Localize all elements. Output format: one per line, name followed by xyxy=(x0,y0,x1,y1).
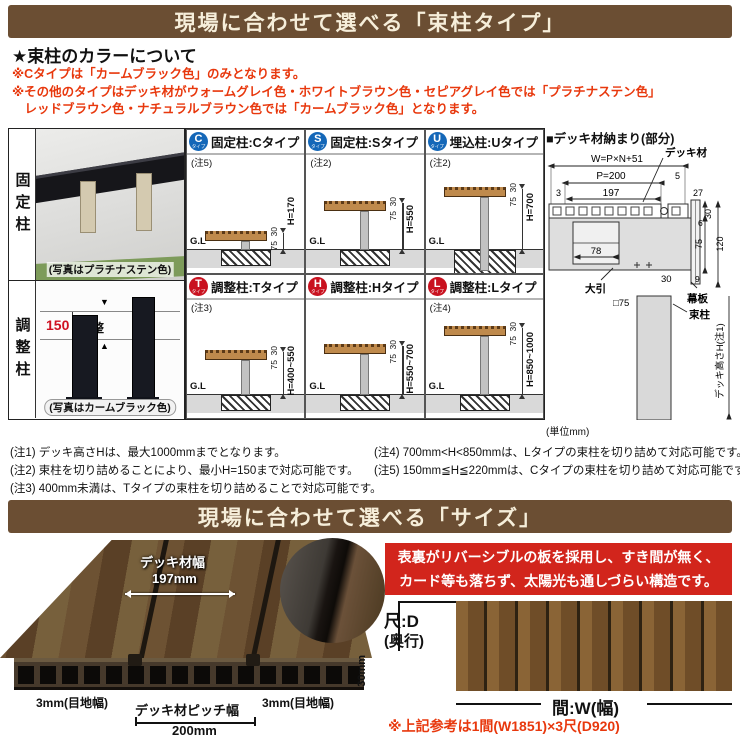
thickness-label: 30mm xyxy=(356,655,368,687)
post-photo-panel: 固定柱 (写真はプラチナステン色) 調整柱 ▼ ▲ 150 調整 xyxy=(8,128,185,420)
post-shape xyxy=(480,336,489,395)
deck-cross-section xyxy=(14,658,364,690)
height-dim-line xyxy=(522,328,523,394)
unit-label: (単位mm) xyxy=(546,423,589,438)
ground-level-label: G.L xyxy=(190,381,206,392)
joint-connector xyxy=(246,654,260,666)
dim-30: 30 xyxy=(389,340,398,349)
height-label: H=850~1000 xyxy=(525,332,536,387)
ground-level-label: G.L xyxy=(309,381,325,392)
ground-level-label: G.L xyxy=(190,236,206,247)
arrow-up-icon: ▲ xyxy=(100,341,109,351)
reference-note: ※上記参考は1間(W1851)×3尺(D920) xyxy=(388,716,620,736)
fixed-post-row: 固定柱 (写真はプラチナステン色) xyxy=(9,129,184,281)
foundation-hatch xyxy=(221,250,271,266)
fixed-post-photo: (写真はプラチナステン色) xyxy=(36,129,184,280)
dim-30: 30 xyxy=(509,183,518,192)
deck-width-value: 197mm xyxy=(152,571,197,586)
type-c-badge-icon: Cタイプ xyxy=(189,132,208,151)
cell-header: Tタイプ 調整柱:Tタイプ xyxy=(187,275,304,300)
color-note-2: ※その他のタイプはデッキ材がウォームグレイ色・ホワイトブラウン色・セピアグレイ色… xyxy=(12,84,661,101)
post-shape xyxy=(360,211,369,250)
type-cell-t: Tタイプ 調整柱:Tタイプ (注3) G.L 30 75 H=400~550 xyxy=(186,274,305,419)
label-post-size: □75 xyxy=(613,298,629,309)
label-makuita: 幕板 xyxy=(686,292,708,305)
detail-diagram-title: ■デッキ材納まり(部分) xyxy=(546,128,674,147)
type-cell-h: Hタイプ 調整柱:Hタイプ G.L 30 75 H=550~700 xyxy=(305,274,424,419)
cell-header: Uタイプ 埋込柱:Uタイプ xyxy=(426,130,543,155)
ground-level-label: G.L xyxy=(429,381,445,392)
adjust-post-caption: (写真はカームブラック色) xyxy=(44,399,176,416)
post-shape xyxy=(480,197,489,271)
dim-75: 75 xyxy=(270,360,279,369)
color-section-heading: ★束柱のカラーについて xyxy=(12,42,197,67)
footnote-3: (注3) 400mm未満は、Tタイプの束柱を切り詰めることで対応可能です。 xyxy=(10,480,382,496)
catalog-page: 現場に合わせて選べる「束柱タイプ」 ★束柱のカラーについて ※Cタイプは「カーム… xyxy=(0,0,740,740)
foundation-hatch xyxy=(340,395,390,411)
dim-27: 27 xyxy=(693,188,703,198)
post-shape xyxy=(241,241,250,250)
feature-line-2: カード等も落ちず、太陽光も通しづらい構造です。 xyxy=(399,569,718,593)
dim-75: 75 xyxy=(389,354,398,363)
type-cell-u: Uタイプ 埋込柱:Uタイプ (注2) G.L 30 75 H=700 xyxy=(425,129,544,274)
height-dim-line xyxy=(283,233,284,249)
height-dim-line xyxy=(283,352,284,394)
type-title: 調整柱:Lタイプ xyxy=(450,277,537,296)
dim-120: 120 xyxy=(715,236,725,251)
height-label: H=170 xyxy=(286,197,297,225)
dim-30: 30 xyxy=(509,322,518,331)
type-title: 固定柱:Cタイプ xyxy=(211,132,299,151)
adjust-post-photo: ▼ ▲ 150 調整 (写真はカームブラック色) xyxy=(36,281,184,418)
cell-header: Hタイプ 調整柱:Hタイプ xyxy=(306,275,423,300)
type-diagram: (注2) G.L 30 75 H=550 xyxy=(306,153,423,273)
post-image xyxy=(136,173,152,231)
dim-30: 30 xyxy=(270,227,279,236)
header2-bar: 現場に合わせて選べる「サイズ」 xyxy=(8,500,732,533)
type-title: 固定柱:Sタイプ xyxy=(330,132,418,151)
dim-30: 30 xyxy=(389,197,398,206)
type-h-badge-icon: Hタイプ xyxy=(308,277,327,296)
joint-width-left: 3mm(目地幅) xyxy=(36,694,108,711)
feature-line-1: 表裏がリバーシブルの板を採用し、すき間が無く、 xyxy=(398,545,720,569)
deck-board-shape xyxy=(324,201,386,211)
height-label: H=700 xyxy=(525,193,536,221)
height-dim-line xyxy=(522,189,523,249)
type-title: 調整柱:Hタイプ xyxy=(330,277,418,296)
label-ooibiki: 大引 xyxy=(585,282,606,295)
fixed-post-caption: (写真はプラチナステン色) xyxy=(47,262,174,277)
post-image xyxy=(80,181,96,233)
dim-30-top: 30 xyxy=(703,209,713,219)
dim-w-formula: W=P×N+51 xyxy=(591,154,643,165)
label-deck-height: デッキ高さH(注1) xyxy=(714,323,726,398)
type-s-badge-icon: Sタイプ xyxy=(308,132,327,151)
height-dim-line xyxy=(402,203,403,249)
deck-board-shape xyxy=(205,350,267,360)
height-label: H=550~700 xyxy=(405,344,416,394)
height-label: H=400~550 xyxy=(286,346,297,396)
dim-75: 75 xyxy=(509,336,518,345)
type-u-badge-icon: Uタイプ xyxy=(428,132,447,151)
cell-note: (注2) xyxy=(430,155,451,169)
height-label: H=550 xyxy=(405,205,416,233)
cell-header: Sタイプ 固定柱:Sタイプ xyxy=(306,130,423,155)
dim-75: 75 xyxy=(389,211,398,220)
deck-board-shape xyxy=(444,187,506,197)
pitch-value: 200mm xyxy=(172,723,217,738)
label-tsukabashira: 束柱 xyxy=(689,308,710,321)
type-diagram: (注2) G.L 30 75 H=700 xyxy=(426,153,543,273)
guide-line xyxy=(40,339,180,340)
deck-board-shape xyxy=(444,326,506,336)
arrow-down-icon: ▼ xyxy=(100,297,109,307)
width-dim-line-left xyxy=(456,703,541,705)
cell-note: (注2) xyxy=(310,155,331,169)
joint-detail-inset-photo xyxy=(280,538,385,643)
dim-p200: P=200 xyxy=(596,171,626,182)
foundation-hatch xyxy=(340,250,390,266)
type-cell-l: Lタイプ 調整柱:Lタイプ (注4) G.L 30 75 H=850~1000 xyxy=(425,274,544,419)
pitch-label: デッキ材ピッチ幅 xyxy=(135,700,239,719)
header1-title: 現場に合わせて選べる「束柱タイプ」 xyxy=(175,7,566,37)
type-l-badge-icon: Lタイプ xyxy=(428,277,447,296)
adjust-dimension: 150 xyxy=(46,317,69,333)
header2-title: 現場に合わせて選べる「サイズ」 xyxy=(198,502,542,532)
black-post-image xyxy=(132,297,155,399)
dim-3: 3 xyxy=(556,188,561,198)
width-dim-line-right xyxy=(647,703,732,705)
joint-connector xyxy=(128,654,142,666)
type-diagram: (注4) G.L 30 75 H=850~1000 xyxy=(426,298,543,418)
deck-board-shape xyxy=(324,344,386,354)
foundation-hatch xyxy=(221,395,271,411)
dim-75: 75 xyxy=(509,197,518,206)
adjust-post-row: 調整柱 ▼ ▲ 150 調整 (写真はカームブラック色) xyxy=(9,281,184,418)
dim-75: 75 xyxy=(694,239,704,249)
cell-header: Cタイプ 固定柱:Cタイプ xyxy=(187,130,304,155)
deck-plan-view-image xyxy=(456,601,732,691)
type-cell-c: Cタイプ 固定柱:Cタイプ (注5) G.L 30 75 H=170 xyxy=(186,129,305,274)
footnote-1: (注1) デッキ高さHは、最大1000mmまでとなります。 xyxy=(10,444,286,460)
color-note-3: レッドブラウン色・ナチュラルブラウン色では「カームブラック色」となります。 xyxy=(12,101,484,118)
dim-30-bottom: 30 xyxy=(661,274,672,285)
dim-30: 30 xyxy=(270,346,279,355)
post-shape xyxy=(360,354,369,395)
type-title: 調整柱:Tタイプ xyxy=(211,277,298,296)
deck-board-shape xyxy=(205,231,267,241)
dim-6: 6 xyxy=(698,218,703,228)
color-note-1: ※Cタイプは「カームブラック色」のみとなります。 xyxy=(12,66,305,83)
joint-width-right: 3mm(目地幅) xyxy=(262,694,334,711)
hollow-cells xyxy=(18,666,360,684)
height-dim-line xyxy=(402,346,403,394)
dim-9: 9 xyxy=(695,274,700,284)
guide-line xyxy=(40,311,180,312)
cell-header: Lタイプ 調整柱:Lタイプ xyxy=(426,275,543,300)
pitch-tick xyxy=(254,717,256,726)
type-diagram: G.L 30 75 H=550~700 xyxy=(306,298,423,418)
deck-width-label: デッキ材幅 xyxy=(140,552,205,571)
footnote-5: (注5) 150mm≦H≦220mmは、Cタイプの束柱を切り詰めて対応可能です。 xyxy=(374,462,740,478)
pitch-tick xyxy=(135,717,137,726)
dim-75: 75 xyxy=(270,241,279,250)
label-deck-material: デッキ材 xyxy=(665,146,707,159)
type-cell-s: Sタイプ 固定柱:Sタイプ (注2) G.L 30 75 H=550 xyxy=(305,129,424,274)
cell-note: (注4) xyxy=(430,300,451,314)
adjust-post-label: 調整柱 xyxy=(9,281,36,418)
deck-width-arrow xyxy=(125,593,235,595)
type-t-badge-icon: Tタイプ xyxy=(189,277,208,296)
feature-box: 表裏がリバーシブルの板を採用し、すき間が無く、 カード等も落ちず、太陽光も通しづ… xyxy=(385,543,732,595)
deck-edge-image xyxy=(36,149,184,204)
depth-label: 尺:D (奥行) xyxy=(384,612,424,652)
post-type-grid: Cタイプ 固定柱:Cタイプ (注5) G.L 30 75 H=170 Sタイプ … xyxy=(185,128,545,420)
cell-note: (注3) xyxy=(191,300,212,314)
dim-5: 5 xyxy=(675,171,680,181)
type-diagram: (注5) G.L 30 75 H=170 xyxy=(187,153,304,273)
header1-bar: 現場に合わせて選べる「束柱タイプ」 xyxy=(8,5,732,38)
type-diagram: (注3) G.L 30 75 H=400~550 xyxy=(187,298,304,418)
black-post-image xyxy=(72,315,98,399)
fixed-post-label: 固定柱 xyxy=(9,129,36,280)
plan-bracket-top xyxy=(398,601,456,603)
ground-level-label: G.L xyxy=(309,236,325,247)
deck-detail-diagram: デッキ材 W=P×N+51 P=200 5 3 197 27 7 xyxy=(545,146,735,420)
foundation-hatch xyxy=(460,395,510,411)
dim-78: 78 xyxy=(591,246,602,257)
post-shape xyxy=(241,360,250,395)
cell-note: (注5) xyxy=(191,155,212,169)
dim-197: 197 xyxy=(603,188,620,199)
type-title: 埋込柱:Uタイプ xyxy=(450,132,538,151)
footnote-2: (注2) 束柱を切り詰めることにより、最小H=150まで対応可能です。 xyxy=(10,462,359,478)
ground-level-label: G.L xyxy=(429,236,445,247)
footnote-4: (注4) 700mm<H<850mmは、Lタイプの束柱を切り詰めて対応可能です。 xyxy=(374,444,740,460)
